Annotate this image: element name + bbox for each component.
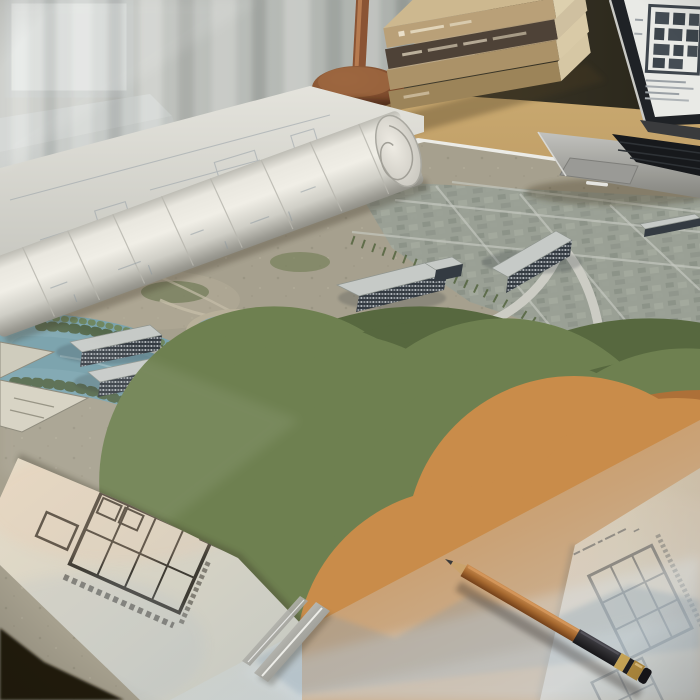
desk-scene <box>0 0 700 700</box>
vignette <box>0 0 700 700</box>
